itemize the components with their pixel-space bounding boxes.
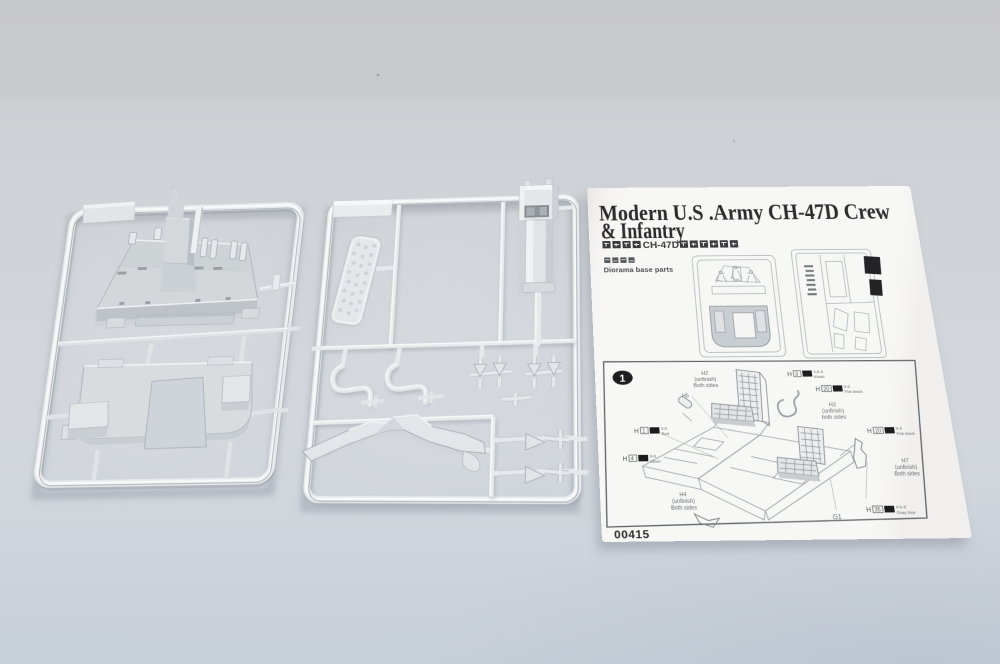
svg-text:H4: H4 xyxy=(679,491,687,497)
svg-text:Gray blue: Gray blue xyxy=(896,510,916,515)
svg-text:9-6: 9-6 xyxy=(843,384,850,389)
svg-text:9-6: 9-6 xyxy=(650,454,657,459)
svg-text:(unfinish): (unfinish) xyxy=(672,498,696,504)
svg-text:H: H xyxy=(634,429,639,436)
svg-text:Both sides: Both sides xyxy=(671,505,698,511)
svg-text:9-6: 9-6 xyxy=(895,426,902,431)
svg-text:H: H xyxy=(815,387,821,394)
svg-text:Both sides: Both sides xyxy=(693,382,719,388)
svg-text:4-6: 4-6 xyxy=(661,426,668,431)
svg-text:both sides: both sides xyxy=(822,414,848,420)
svg-text:1: 1 xyxy=(619,373,625,384)
svg-text:(unfinish): (unfinish) xyxy=(822,408,845,414)
svg-text:CH-47D: CH-47D xyxy=(642,240,679,250)
svg-text:Both sides: Both sides xyxy=(894,471,921,477)
svg-text:H5: H5 xyxy=(682,393,690,399)
svg-text:G1: G1 xyxy=(832,514,842,521)
svg-text:H: H xyxy=(787,372,792,379)
svg-text:H3: H3 xyxy=(829,402,837,408)
svg-text:Silver: Silver xyxy=(650,459,662,464)
svg-text:H: H xyxy=(622,456,627,463)
svg-text:(unfinish): (unfinish) xyxy=(895,464,919,470)
svg-text:4-5-6: 4-5-6 xyxy=(895,505,906,510)
svg-text:H: H xyxy=(866,507,872,514)
svg-text:Red: Red xyxy=(661,432,669,437)
svg-text:00415: 00415 xyxy=(614,528,651,542)
svg-text:4-6-6: 4-6-6 xyxy=(813,370,823,374)
svg-text:Flat black: Flat black xyxy=(844,389,863,394)
svg-text:Diorama base parts: Diorama base parts xyxy=(604,267,674,275)
svg-text:20: 20 xyxy=(823,386,830,392)
svg-text:H2: H2 xyxy=(701,370,709,376)
svg-text:(unfinish): (unfinish) xyxy=(694,376,717,382)
svg-text:H: H xyxy=(867,428,873,435)
svg-text:Khaki: Khaki xyxy=(814,375,825,380)
svg-text:H7: H7 xyxy=(901,458,909,464)
svg-text:Flat black: Flat black xyxy=(896,431,915,436)
